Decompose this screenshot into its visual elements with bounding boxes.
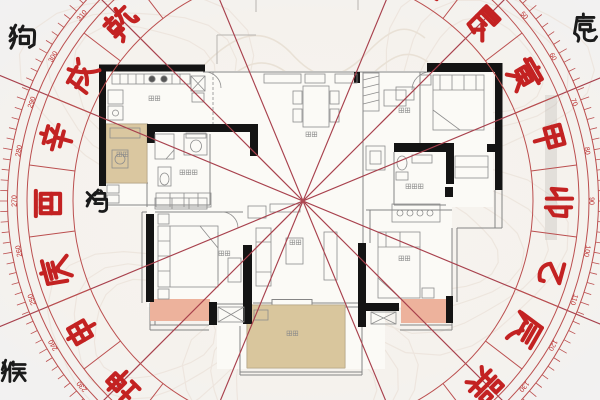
svg-text:90: 90 [588,197,595,205]
svg-text:270: 270 [12,195,19,207]
svg-text:80: 80 [582,147,590,156]
